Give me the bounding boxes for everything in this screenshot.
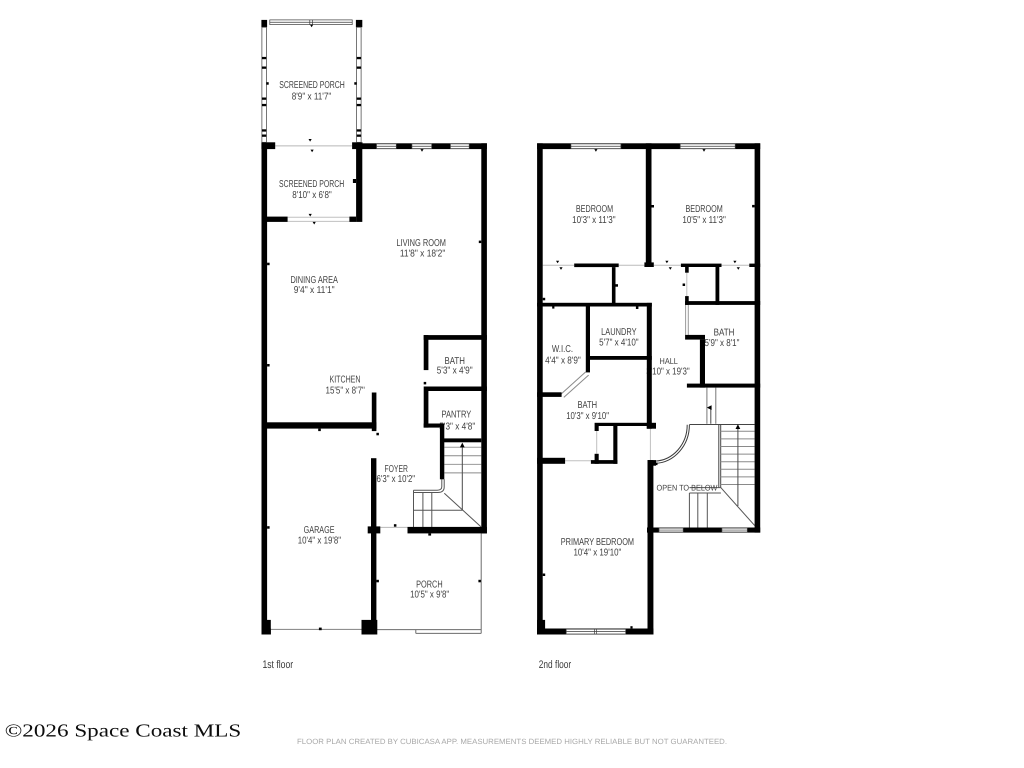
svg-text:BEDROOM: BEDROOM (576, 204, 613, 215)
svg-text:11'8" x 18'2": 11'8" x 18'2" (400, 249, 446, 260)
svg-text:DINING AREA: DINING AREA (290, 275, 338, 286)
svg-text:FLOOR PLAN CREATED BY CUBICASA: FLOOR PLAN CREATED BY CUBICASA APP. MEAS… (297, 737, 727, 746)
svg-text:LAUNDRY: LAUNDRY (601, 327, 637, 338)
svg-text:5'7" x 4'10": 5'7" x 4'10" (599, 338, 639, 349)
svg-text:W.I.C.: W.I.C. (552, 344, 573, 355)
svg-text:LIVING ROOM: LIVING ROOM (396, 238, 446, 249)
svg-text:PRIMARY BEDROOM: PRIMARY BEDROOM (561, 537, 634, 548)
svg-text:BATH: BATH (578, 400, 598, 411)
svg-text:2nd floor: 2nd floor (539, 659, 572, 671)
svg-text:OPEN TO BELOW: OPEN TO BELOW (657, 484, 718, 493)
svg-text:15'5" x 8'7": 15'5" x 8'7" (326, 386, 366, 397)
svg-text:KITCHEN: KITCHEN (330, 375, 361, 386)
svg-text:3'10" x 19'3": 3'10" x 19'3" (646, 367, 690, 378)
svg-text:SCREENED PORCH: SCREENED PORCH (279, 179, 344, 190)
svg-text:HALL: HALL (660, 356, 678, 366)
svg-text:8'9" x 11'7": 8'9" x 11'7" (292, 92, 332, 103)
svg-text:10'4" x 19'10": 10'4" x 19'10" (573, 547, 621, 558)
svg-text:5'3" x 4'9": 5'3" x 4'9" (437, 366, 473, 377)
svg-text:4'4" x 8'9": 4'4" x 8'9" (545, 355, 581, 366)
svg-text:10'5" x 9'8": 10'5" x 9'8" (410, 590, 449, 601)
svg-text:BEDROOM: BEDROOM (685, 204, 722, 215)
svg-text:BATH: BATH (714, 327, 735, 338)
svg-text:10'3" x 9'10": 10'3" x 9'10" (566, 411, 609, 422)
svg-text:SCREENED PORCH: SCREENED PORCH (279, 80, 345, 91)
svg-text:5'3" x 4'8": 5'3" x 4'8" (439, 421, 475, 432)
svg-text:5'9" x 8'1": 5'9" x 8'1" (705, 338, 740, 349)
svg-text:1st floor: 1st floor (262, 659, 293, 671)
svg-text:10'5" x 11'3": 10'5" x 11'3" (682, 215, 726, 226)
svg-text:9'4" x 11'1": 9'4" x 11'1" (294, 285, 335, 296)
svg-text:©2026 Space Coast MLS: ©2026 Space Coast MLS (5, 721, 242, 741)
svg-text:6'3" x 10'2": 6'3" x 10'2" (377, 474, 416, 485)
svg-text:10'4" x 19'8": 10'4" x 19'8" (298, 535, 342, 546)
svg-text:10'3" x 11'3": 10'3" x 11'3" (572, 215, 616, 226)
svg-text:PANTRY: PANTRY (442, 410, 472, 421)
svg-text:8'10" x 6'8": 8'10" x 6'8" (292, 190, 332, 201)
